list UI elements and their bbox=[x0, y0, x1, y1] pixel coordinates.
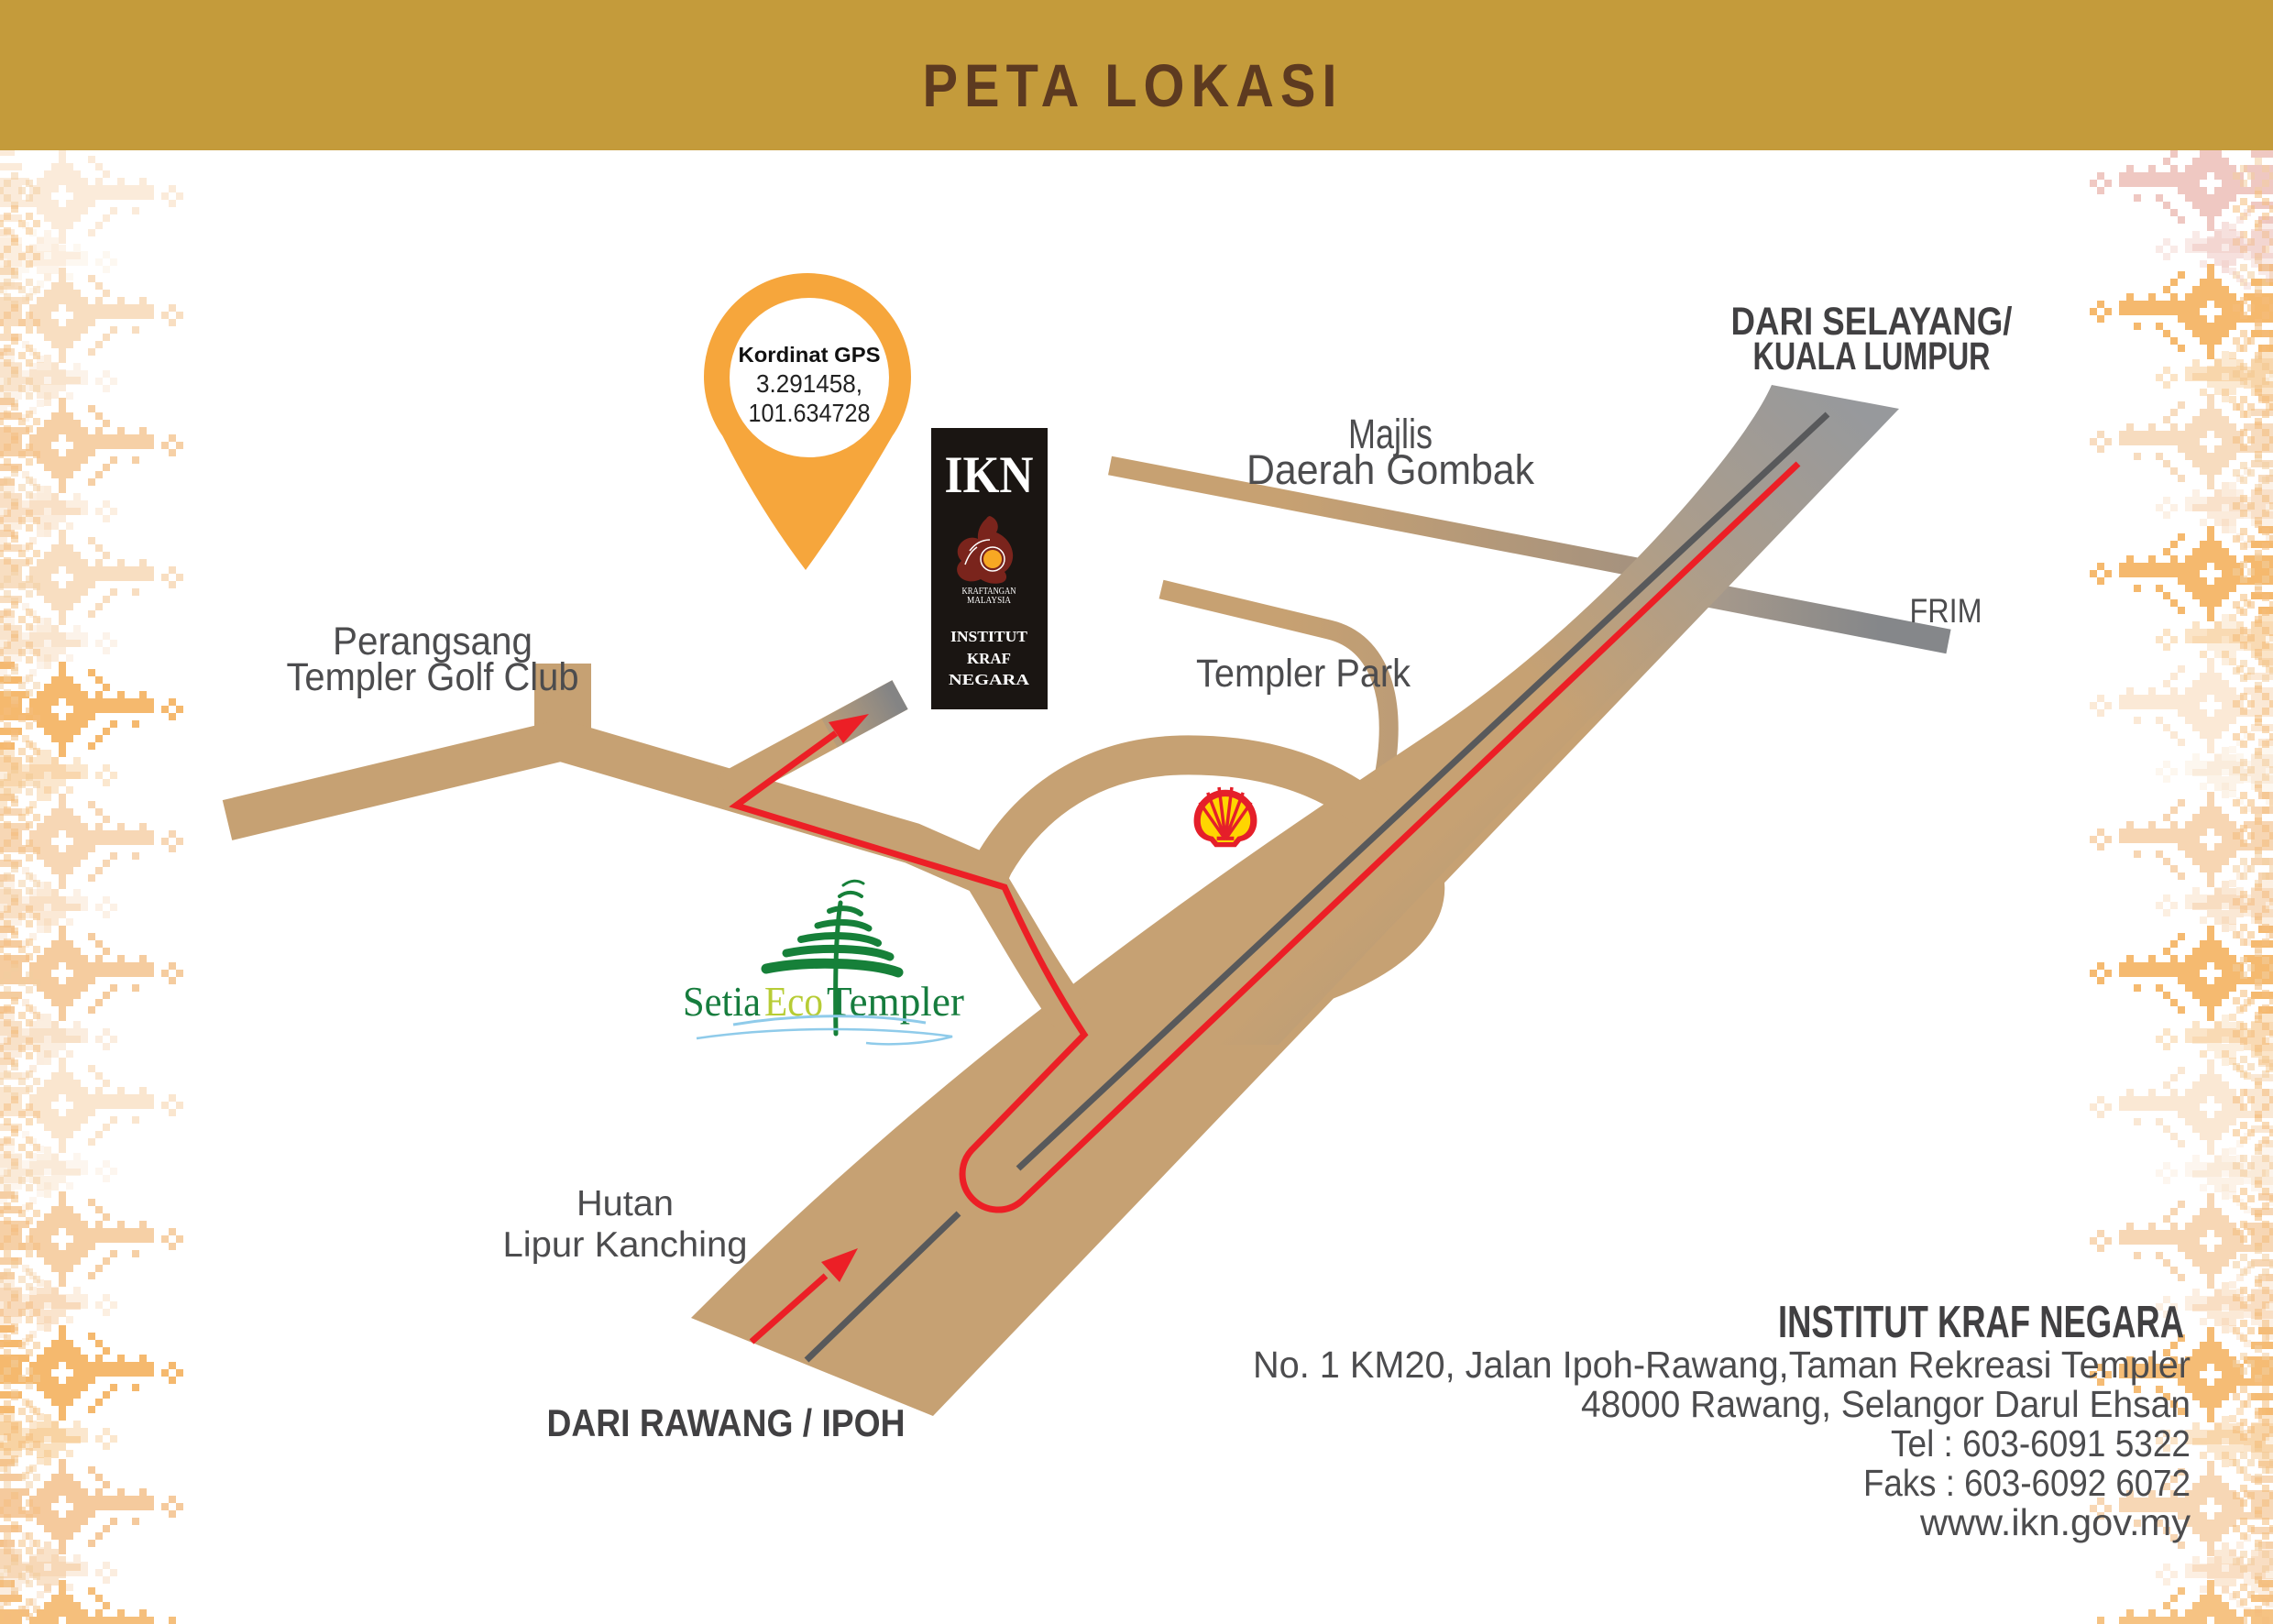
svg-text:Templer Park: Templer Park bbox=[1196, 652, 1411, 696]
svg-text:IKN: IKN bbox=[945, 446, 1034, 504]
svg-text:www.ikn.gov.my: www.ikn.gov.my bbox=[1919, 1501, 2191, 1543]
svg-text:Templer Golf Club: Templer Golf Club bbox=[287, 655, 579, 699]
svg-text:Setia: Setia bbox=[683, 978, 761, 1025]
svg-text:NEGARA: NEGARA bbox=[949, 671, 1030, 688]
svg-text:48000 Rawang, Selangor Darul E: 48000 Rawang, Selangor Darul Ehsan bbox=[1581, 1383, 2191, 1425]
svg-text:INSTITUT KRAF NEGARA: INSTITUT KRAF NEGARA bbox=[1778, 1298, 2184, 1347]
svg-text:Tel : 603-6091 5322: Tel : 603-6091 5322 bbox=[1891, 1422, 2191, 1465]
svg-text:INSTITUT: INSTITUT bbox=[950, 628, 1028, 645]
svg-text:101.634728: 101.634728 bbox=[749, 399, 871, 427]
svg-text:KUALA LUMPUR: KUALA LUMPUR bbox=[1753, 335, 1991, 379]
svg-text:No. 1 KM20, Jalan Ipoh-Rawang,: No. 1 KM20, Jalan Ipoh-Rawang,Taman Rekr… bbox=[1253, 1344, 2191, 1386]
svg-text:DARI RAWANG / IPOH: DARI RAWANG / IPOH bbox=[547, 1401, 906, 1444]
svg-text:Hutan: Hutan bbox=[576, 1184, 674, 1223]
svg-text:Faks : 603-6092 6072: Faks : 603-6092 6072 bbox=[1863, 1462, 2191, 1504]
svg-text:Kordinat GPS: Kordinat GPS bbox=[739, 343, 881, 367]
svg-text:3.291458,: 3.291458, bbox=[756, 369, 862, 398]
svg-text:FRIM: FRIM bbox=[1910, 592, 1982, 630]
svg-text:Lipur Kanching: Lipur Kanching bbox=[503, 1225, 748, 1265]
svg-text:MALAYSIA: MALAYSIA bbox=[967, 596, 1012, 606]
svg-text:PETA LOKASI: PETA LOKASI bbox=[923, 51, 1344, 119]
svg-text:KRAF: KRAF bbox=[967, 650, 1011, 667]
svg-text:Daerah Gombak: Daerah Gombak bbox=[1246, 446, 1534, 493]
